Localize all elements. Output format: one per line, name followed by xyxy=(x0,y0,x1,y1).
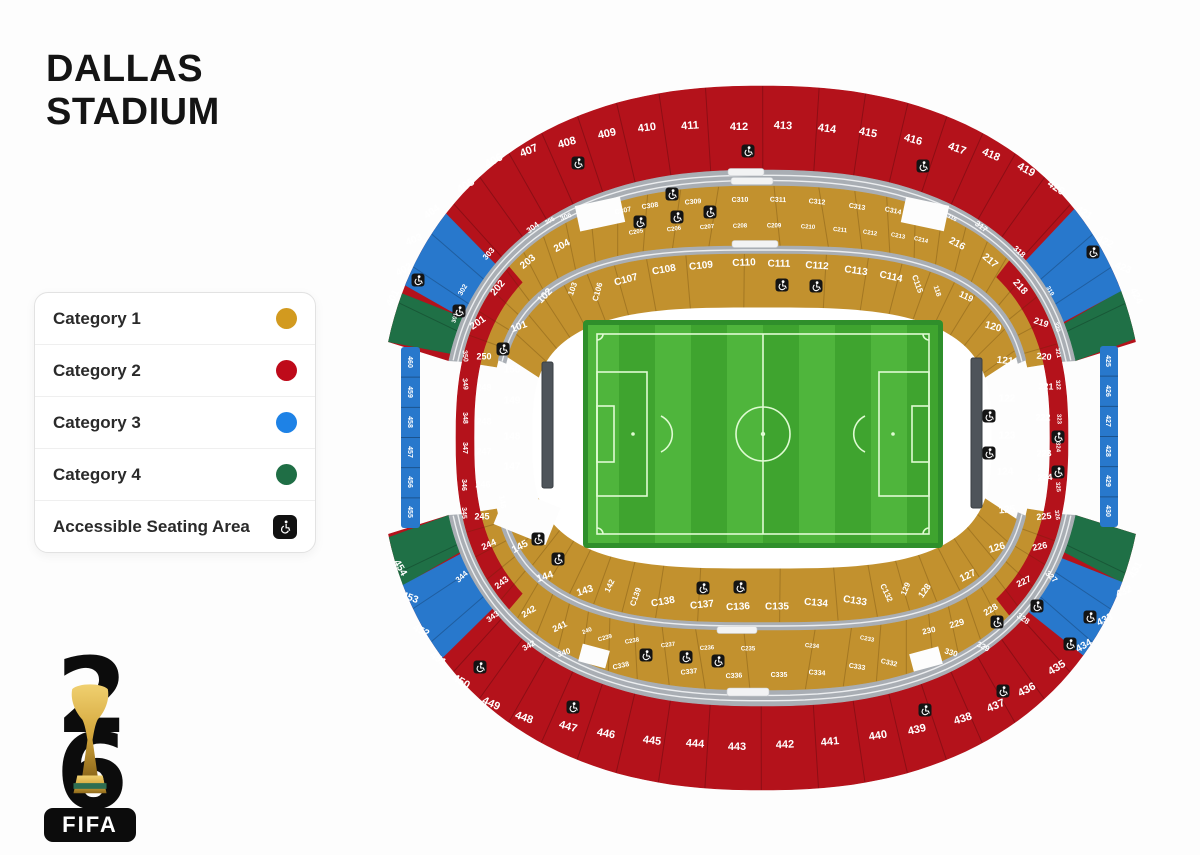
section-label-431[interactable]: 431 xyxy=(1127,560,1145,580)
accessible-seat-icon xyxy=(1087,246,1100,259)
accessible-seat-icon xyxy=(552,553,565,566)
fifa-wordmark: FIFA xyxy=(44,808,136,842)
accessible-seat-icon xyxy=(704,206,717,219)
legend-label: Category 4 xyxy=(53,465,141,485)
section-label-220[interactable]: 220 xyxy=(1036,351,1052,363)
accessible-seat-icon xyxy=(991,616,1004,629)
section-label-423[interactable]: 423 xyxy=(1113,260,1133,277)
accessible-seat-icon xyxy=(917,160,930,173)
walkway-sign xyxy=(717,627,757,634)
accessible-seat-icon xyxy=(680,651,693,664)
accessible-seat-icon xyxy=(532,533,545,546)
legend: Category 1 Category 2 Category 3 Categor… xyxy=(34,292,316,553)
accessible-seat-icon xyxy=(567,701,580,714)
section-label-C310[interactable]: C310 xyxy=(732,197,749,204)
page-title: DALLAS STADIUM xyxy=(46,48,220,133)
section-label-410[interactable]: 410 xyxy=(637,121,657,135)
section-label-412[interactable]: 412 xyxy=(730,121,748,133)
world-cup-trophy-icon xyxy=(64,684,116,806)
accessible-seat-icon xyxy=(810,280,823,293)
accessible-seat-icon xyxy=(742,145,755,158)
section-label-C334[interactable]: C334 xyxy=(808,669,825,677)
section-label-349[interactable]: 349 xyxy=(461,378,469,390)
walkway-sign xyxy=(728,169,764,176)
walkway-sign xyxy=(732,241,778,248)
pitch xyxy=(583,320,943,548)
legend-swatch-2 xyxy=(276,412,297,433)
section-label-459[interactable]: 459 xyxy=(406,386,413,398)
section-label-122[interactable]: 122 xyxy=(999,394,1016,405)
section-label-345[interactable]: 345 xyxy=(460,507,467,519)
section-label-121[interactable]: 121 xyxy=(996,355,1014,368)
section-label-C110[interactable]: C110 xyxy=(732,257,756,269)
accessible-seat-icon xyxy=(640,649,653,662)
tunnel-bar xyxy=(971,358,982,508)
section-label-249[interactable]: 249 xyxy=(476,382,491,392)
section-label-C236[interactable]: C236 xyxy=(700,645,715,652)
walkway-sign xyxy=(731,178,773,185)
accessible-seat-icon xyxy=(1084,611,1097,624)
section-label-146[interactable]: 146 xyxy=(497,495,508,510)
section-label-124[interactable]: 124 xyxy=(996,466,1013,478)
section-divider xyxy=(780,567,781,622)
section-label-250[interactable]: 250 xyxy=(476,351,491,361)
section-label-424[interactable]: 424 xyxy=(1127,286,1145,306)
section-label-428[interactable]: 428 xyxy=(1104,445,1111,457)
accessible-seat-icon xyxy=(983,410,996,423)
accessible-seat-icon xyxy=(1064,638,1077,651)
section-label-123[interactable]: 123 xyxy=(999,431,1016,442)
accessible-seat-icon xyxy=(997,685,1010,698)
section-label-245[interactable]: 245 xyxy=(474,511,489,521)
section-label-414[interactable]: 414 xyxy=(817,122,838,136)
section-label-C235[interactable]: C235 xyxy=(741,647,756,653)
accessible-seat-icon xyxy=(671,211,684,224)
accessible-seat-icon xyxy=(572,157,585,170)
section-label-224[interactable]: 224 xyxy=(1037,472,1053,483)
seat-map-page: 4014024034044054064074084094104114124134… xyxy=(0,0,1200,855)
section-label-125[interactable]: 125 xyxy=(998,504,1016,517)
section-label-323[interactable]: 323 xyxy=(1055,414,1061,425)
section-label-C208[interactable]: C208 xyxy=(733,223,748,230)
section-label-441[interactable]: 441 xyxy=(820,735,840,749)
legend-row-category-3: Category 3 xyxy=(35,396,315,448)
legend-label: Category 2 xyxy=(53,361,141,381)
accessible-seat-icon xyxy=(474,661,487,674)
section-label-456[interactable]: 456 xyxy=(406,476,413,488)
section-label-248[interactable]: 248 xyxy=(476,416,491,426)
accessible-seat-icon xyxy=(697,582,710,595)
section-label-148[interactable]: 148 xyxy=(504,432,521,443)
section-label-322[interactable]: 322 xyxy=(1054,380,1061,391)
section-label-C111[interactable]: C111 xyxy=(767,258,790,269)
section-label-C335[interactable]: C335 xyxy=(771,672,788,679)
legend-label: Accessible Seating Area xyxy=(53,517,250,537)
section-label-C112[interactable]: C112 xyxy=(805,260,830,273)
section-label-425[interactable]: 425 xyxy=(1104,355,1111,367)
legend-swatch-1 xyxy=(276,360,297,381)
section-label-413[interactable]: 413 xyxy=(774,119,793,132)
section-label-426[interactable]: 426 xyxy=(1104,385,1111,397)
section-label-C309[interactable]: C309 xyxy=(684,198,701,206)
section-label-427[interactable]: 427 xyxy=(1104,415,1111,427)
accessible-seat-icon xyxy=(919,704,932,717)
accessible-seat-icon xyxy=(734,581,747,594)
legend-row-category-2: Category 2 xyxy=(35,344,315,396)
accessible-seat-icon xyxy=(1052,466,1065,479)
accessible-seat-icon xyxy=(1031,600,1044,613)
walkway-sign xyxy=(727,688,769,696)
section-label-348[interactable]: 348 xyxy=(461,412,468,424)
legend-label: Category 1 xyxy=(53,309,141,329)
section-label-C134[interactable]: C134 xyxy=(804,597,829,610)
accessible-seat-icon xyxy=(776,279,789,292)
section-label-403[interactable]: 403 xyxy=(404,232,424,249)
accessible-seat-icon xyxy=(634,216,647,229)
section-label-223[interactable]: 223 xyxy=(1036,448,1051,459)
section-label-346[interactable]: 346 xyxy=(460,479,467,491)
tunnel-bar xyxy=(542,362,553,488)
legend-swatch-0 xyxy=(276,308,297,329)
accessible-seat-icon xyxy=(712,655,725,668)
section-label-444[interactable]: 444 xyxy=(685,737,705,750)
section-label-147[interactable]: 147 xyxy=(504,462,521,473)
section-label-430[interactable]: 430 xyxy=(1104,505,1111,517)
section-label-404[interactable]: 404 xyxy=(422,203,442,222)
section-label-347[interactable]: 347 xyxy=(461,442,468,454)
legend-swatch-3 xyxy=(276,464,297,485)
wheelchair-icon xyxy=(273,515,297,539)
section-label-C336[interactable]: C336 xyxy=(725,672,742,680)
legend-row-accessible: Accessible Seating Area xyxy=(35,500,315,552)
section-label-429[interactable]: 429 xyxy=(1104,475,1111,487)
fifa-26-logo: 2 6 FIFA xyxy=(28,658,152,846)
section-label-247[interactable]: 247 xyxy=(476,446,491,456)
legend-row-category-4: Category 4 xyxy=(35,448,315,500)
section-label-C136[interactable]: C136 xyxy=(726,601,751,613)
section-label-457[interactable]: 457 xyxy=(406,446,413,458)
section-label-350[interactable]: 350 xyxy=(461,350,469,362)
accessible-seat-icon xyxy=(497,343,510,356)
section-label-C209[interactable]: C209 xyxy=(767,224,782,230)
accessible-seat-icon xyxy=(983,447,996,460)
section-label-460[interactable]: 460 xyxy=(406,356,413,368)
legend-row-category-1: Category 1 xyxy=(35,293,315,344)
title-line-2: STADIUM xyxy=(46,91,220,134)
accessible-seat-icon xyxy=(412,274,425,287)
section-label-455[interactable]: 455 xyxy=(406,506,413,518)
section-label-443[interactable]: 443 xyxy=(728,741,746,753)
section-label-411[interactable]: 411 xyxy=(681,119,700,132)
section-label-325[interactable]: 325 xyxy=(1054,482,1061,493)
title-line-1: DALLAS xyxy=(46,48,220,91)
section-label-324[interactable]: 324 xyxy=(1054,442,1060,453)
section-label-150[interactable]: 150 xyxy=(504,365,521,376)
section-label-C311[interactable]: C311 xyxy=(770,197,787,205)
section-label-445[interactable]: 445 xyxy=(642,734,662,748)
section-label-442[interactable]: 442 xyxy=(776,739,795,752)
section-label-222[interactable]: 222 xyxy=(1035,412,1050,422)
section-label-221[interactable]: 221 xyxy=(1038,381,1053,392)
section-label-C210[interactable]: C210 xyxy=(801,224,816,231)
section-label-C135[interactable]: C135 xyxy=(765,602,789,613)
section-label-149[interactable]: 149 xyxy=(504,396,521,407)
legend-label: Category 3 xyxy=(53,413,141,433)
accessible-seat-icon xyxy=(666,188,679,201)
section-label-246[interactable]: 246 xyxy=(475,479,490,489)
section-label-225[interactable]: 225 xyxy=(1036,511,1052,523)
section-label-458[interactable]: 458 xyxy=(406,416,413,428)
section-label-C312[interactable]: C312 xyxy=(808,198,825,206)
